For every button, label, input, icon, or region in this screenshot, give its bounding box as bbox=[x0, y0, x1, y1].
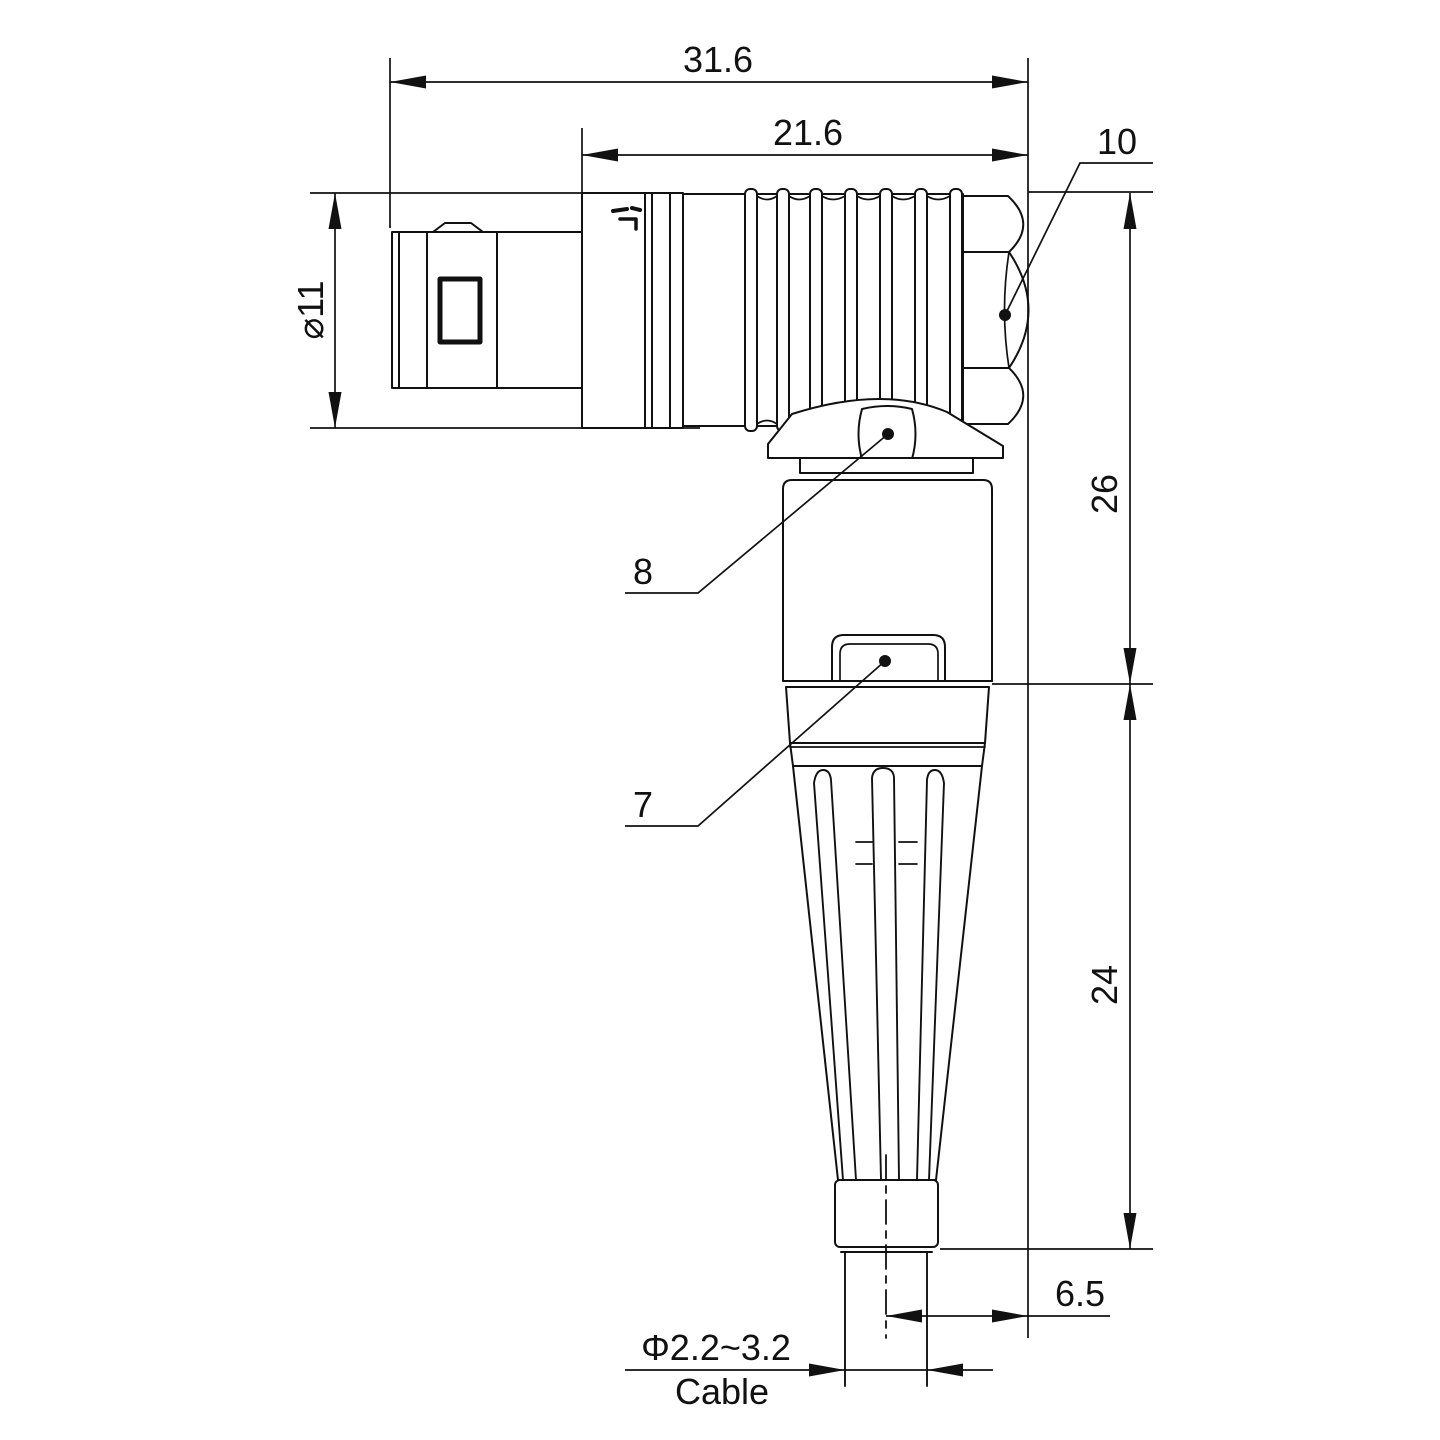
drawing-page: Lightany bbox=[0, 0, 1440, 1440]
dim-body-diameter-label: ⌀11 bbox=[290, 280, 331, 339]
mid-cylinder bbox=[497, 232, 582, 388]
washer bbox=[800, 458, 973, 473]
front-nose bbox=[392, 232, 427, 388]
callout-boot-clip-label: 7 bbox=[633, 784, 653, 825]
dim-rear-length-label: 21.6 bbox=[773, 112, 843, 153]
callout-elbow-nut-label: 8 bbox=[633, 551, 653, 592]
elbow-assembly bbox=[768, 399, 1003, 681]
dim-height-upper-label: 26 bbox=[1084, 474, 1125, 514]
key-bump bbox=[433, 223, 483, 232]
technical-drawing: Lightany bbox=[0, 0, 1440, 1440]
boot-taper bbox=[793, 766, 982, 1180]
dim-overall-length-label: 31.6 bbox=[683, 39, 753, 80]
connector-horizontal-assembly bbox=[392, 193, 683, 428]
coupling-hex-nut bbox=[963, 196, 1029, 424]
cable-label: Cable bbox=[675, 1371, 769, 1412]
dim-height-lower-label: 24 bbox=[1084, 965, 1125, 1005]
dim-cable-offset-label: 6.5 bbox=[1055, 1273, 1105, 1314]
strain-relief-boot bbox=[786, 687, 989, 1252]
latch-clip bbox=[832, 635, 945, 681]
callout-nut-width-label: 10 bbox=[1097, 121, 1137, 162]
grip-collar bbox=[645, 193, 683, 428]
dim-cable-diameter-label: Φ2.2~3.2 bbox=[641, 1327, 791, 1368]
bend-relief-ribs bbox=[683, 189, 963, 431]
